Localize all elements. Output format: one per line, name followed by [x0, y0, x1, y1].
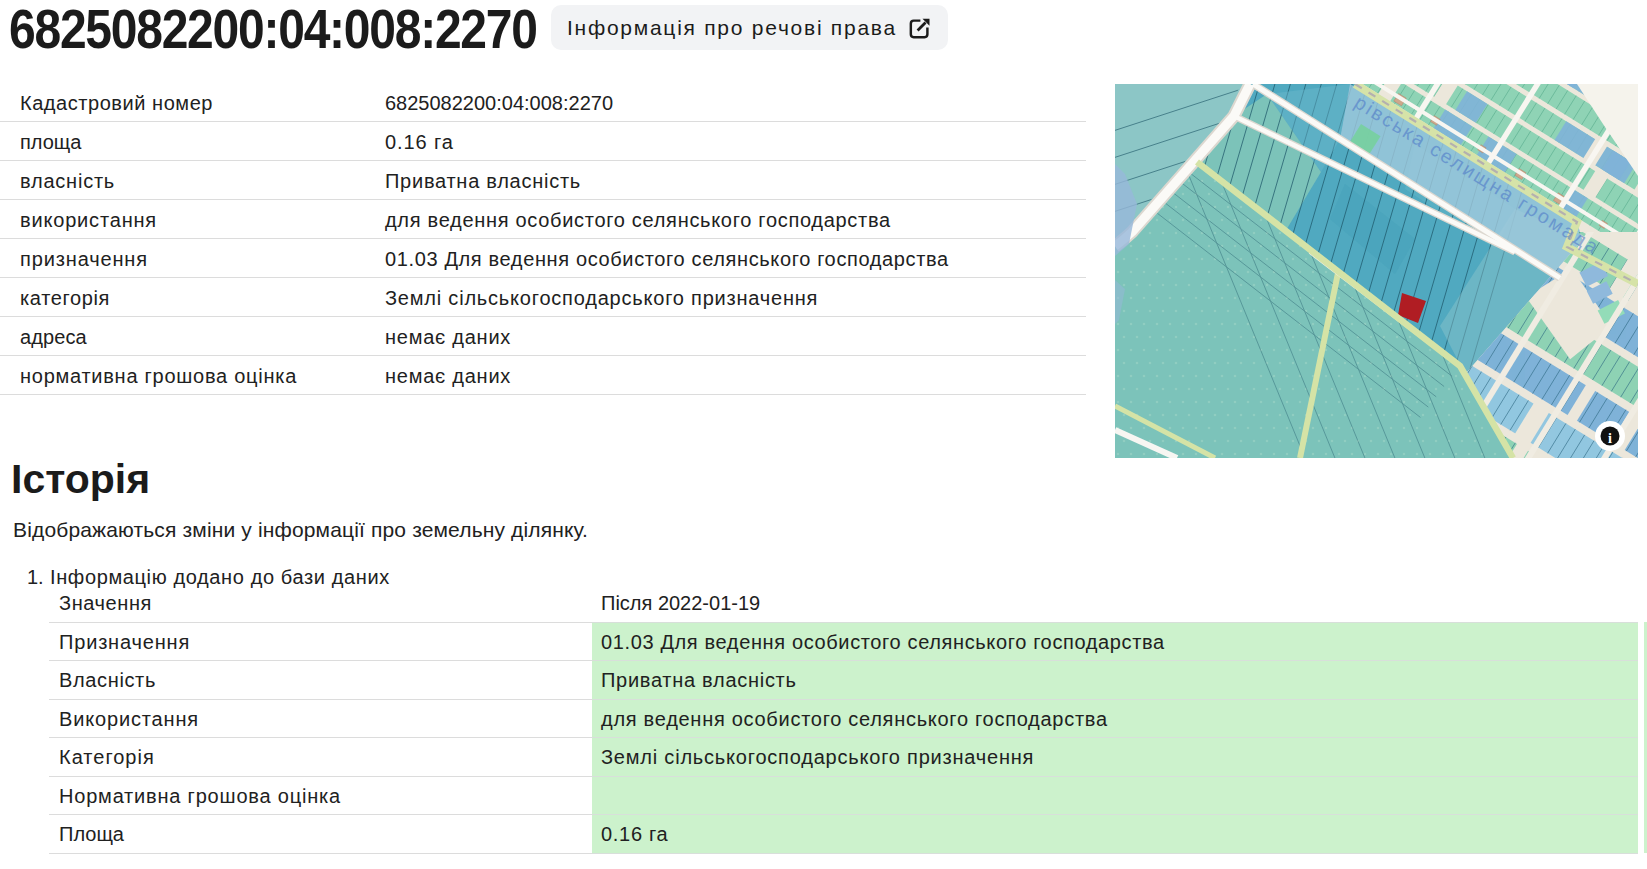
- svg-text:i: i: [1608, 431, 1612, 446]
